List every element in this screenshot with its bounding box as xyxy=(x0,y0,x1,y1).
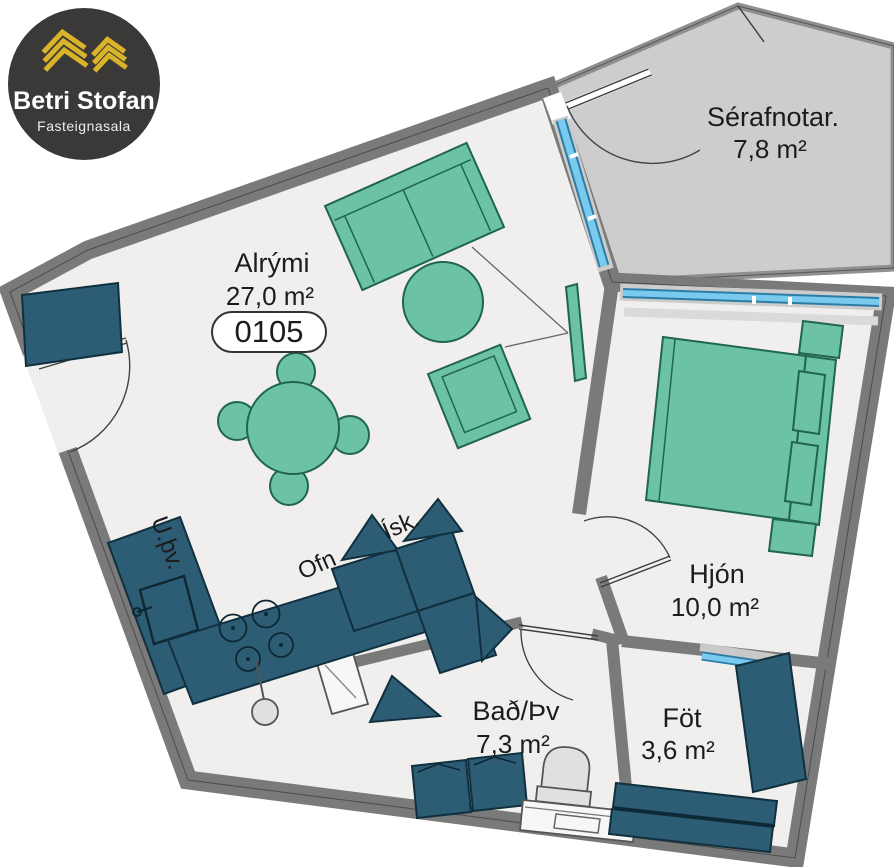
washer xyxy=(412,760,471,818)
burner-dot xyxy=(246,657,250,661)
room-label-fot: Föt xyxy=(662,703,702,733)
room-area-alrymi: 27,0 m² xyxy=(226,281,314,311)
pillow xyxy=(785,442,818,505)
dryer xyxy=(468,753,527,811)
room-label-serafnotar: Sérafnotar. xyxy=(707,102,839,132)
room-label-bad: Bað/Þv xyxy=(472,696,560,726)
nightstand xyxy=(799,321,843,358)
room-area-hjon: 10,0 m² xyxy=(671,592,759,622)
glazed-wall-mullion xyxy=(570,154,578,157)
burner-dot xyxy=(279,643,283,647)
logo-buildings-icon xyxy=(32,26,136,86)
floorplan-page: Alrými 27,0 m² 0105 Sérafnotar. 7,8 m² H… xyxy=(0,0,894,867)
bed-mattress xyxy=(646,337,806,520)
dining-table xyxy=(247,382,339,474)
room-label-alrymi: Alrými xyxy=(235,248,310,278)
coffee-table xyxy=(403,262,483,342)
unit-number: 0105 xyxy=(235,314,304,349)
room-area-fot: 3,6 m² xyxy=(641,735,715,765)
burner-dot xyxy=(231,626,235,630)
brand-tagline: Fasteignasala xyxy=(37,118,131,134)
logo: Betri Stofan Fasteignasala xyxy=(8,8,160,160)
pillow xyxy=(793,371,825,434)
pendant-light xyxy=(252,699,278,725)
brand-name: Betri Stofan xyxy=(13,89,155,114)
glazed-wall-mullion2 xyxy=(588,216,596,219)
room-label-hjon: Hjón xyxy=(689,559,745,589)
burner-dot xyxy=(264,612,268,616)
nightstand xyxy=(769,519,816,556)
room-area-bad: 7,3 m² xyxy=(476,729,550,759)
entrance-closet xyxy=(22,283,122,366)
room-area-serafnotar: 7,8 m² xyxy=(733,134,807,164)
